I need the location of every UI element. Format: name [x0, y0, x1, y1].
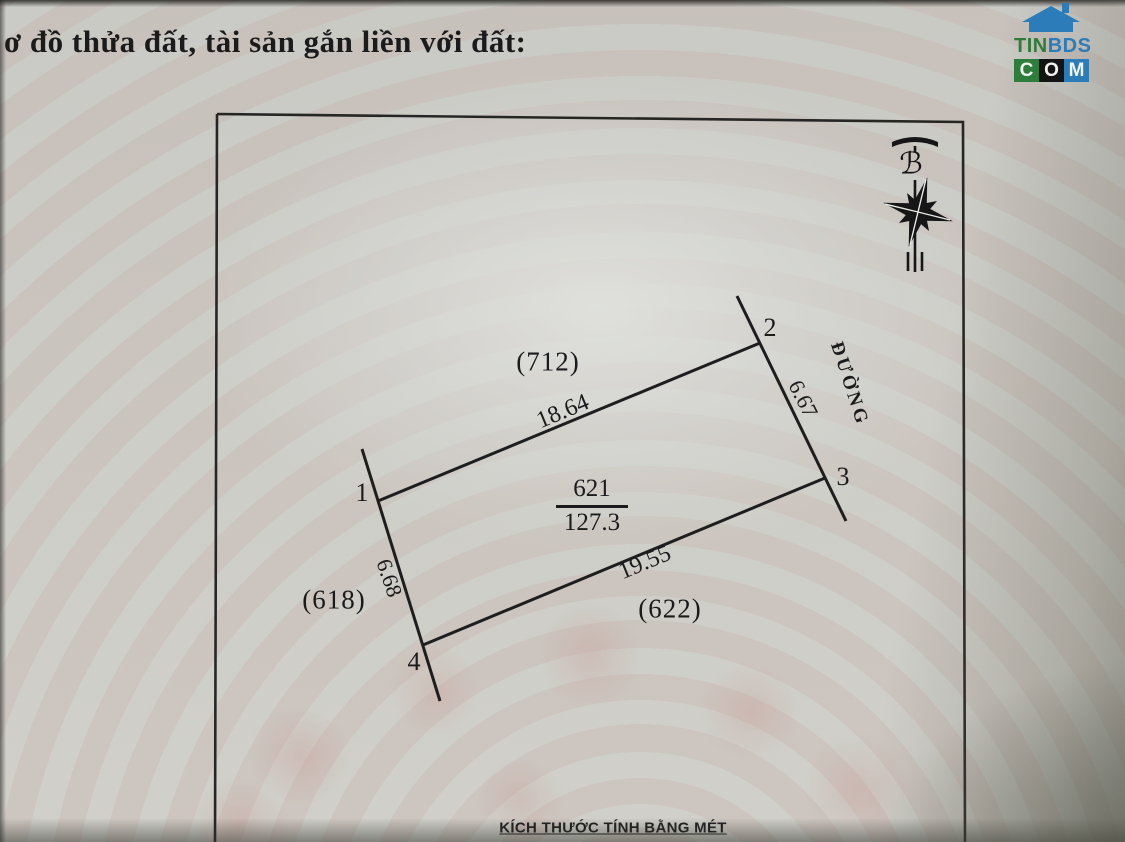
- logo-letter-o: O: [1039, 59, 1064, 82]
- corner-label-3: 3: [837, 462, 850, 492]
- tinbds-logo: TINBDS C O M: [1014, 6, 1114, 82]
- north-arrow-cap: [892, 137, 938, 147]
- north-symbol: ℬ: [899, 147, 923, 182]
- logo-letter-m: M: [1064, 59, 1089, 82]
- corner-label-1: 1: [356, 478, 369, 508]
- neighbor-label-622: (622): [638, 594, 701, 625]
- compass-star-rays: [885, 179, 950, 245]
- corner-label-4: 4: [408, 647, 421, 677]
- logo-letter-c: C: [1014, 59, 1039, 82]
- neighbor-label-618: (618): [302, 585, 365, 616]
- logo-text-top: TINBDS: [1014, 35, 1114, 58]
- logo-text-com: C O M: [1014, 59, 1114, 82]
- photo-of-cadastral-diagram: ơ đồ thửa đất, tài sản gắn liền với đất:…: [0, 0, 1125, 842]
- plot-area: 127.3: [556, 508, 628, 537]
- logo-text-tin: TIN: [1014, 35, 1048, 57]
- footer-note: KÍCH THƯỚC TÍNH BẰNG MÉT: [499, 820, 726, 837]
- plot-edge-right-extended: [737, 296, 846, 521]
- logo-text-bds: BDS: [1048, 35, 1092, 57]
- neighbor-label-712: (712): [516, 347, 579, 378]
- corner-label-2: 2: [764, 313, 777, 343]
- plot-number: 621: [556, 475, 628, 505]
- plot-label: 621 127.3: [556, 475, 628, 537]
- logo-house-icon: [1022, 6, 1080, 32]
